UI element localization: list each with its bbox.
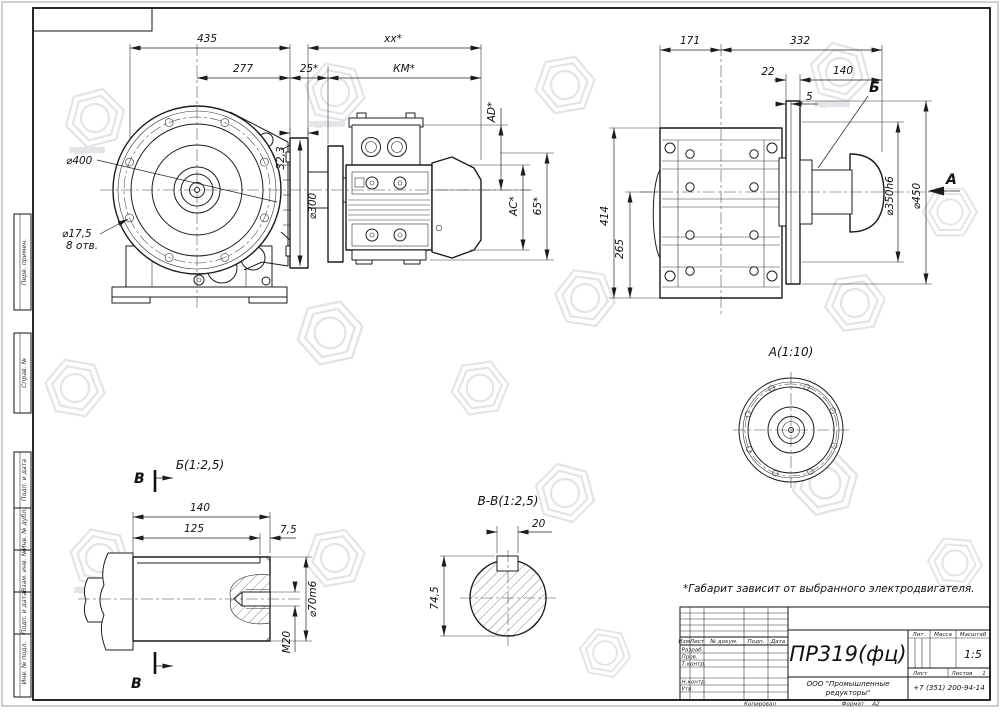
dim-dia300: ⌀300 — [307, 193, 319, 220]
kopiroval-label: Копировал — [744, 702, 776, 708]
dim-dia450: ⌀450 — [911, 183, 923, 210]
row-razrab: Разраб. — [682, 648, 704, 654]
stub-podp-data-1: Подп. и дата — [21, 459, 28, 501]
row-utv: Утв. — [682, 687, 694, 693]
dim-25: 25* — [300, 63, 319, 75]
dim-8-holes: 8 отв. — [66, 240, 98, 252]
company-line1: ООО "Промышленные — [806, 679, 890, 688]
stub-sprav-n: Справ. № — [21, 358, 28, 388]
hdr-list: Лист — [912, 671, 928, 677]
dim-125: 125 — [184, 523, 204, 535]
dim-dia350: ⌀350h6 — [884, 176, 896, 216]
dim-dia70: ⌀70m6 — [307, 580, 319, 617]
format-label: Формат — [842, 702, 865, 708]
sheets-value: 1 — [982, 671, 986, 677]
stub-perv-primen: Перв. примен. — [21, 239, 28, 285]
dim-ad: AD* — [486, 102, 498, 124]
watermark-text: РЕДУКТОРЫ — [815, 102, 849, 108]
col-data: Дата — [770, 639, 786, 645]
view-a-label: А(1:10) — [768, 345, 814, 359]
scale-value: 1:5 — [964, 648, 982, 661]
dim-m20: М20 — [281, 630, 293, 653]
row-prov: Пров. — [682, 655, 698, 661]
dim-32-3: 32,3 — [275, 146, 287, 169]
dim-7-5: 7,5 — [280, 524, 297, 536]
label-b-callout: Б — [869, 80, 880, 96]
watermark-text: РЕДУКТОРЫ — [70, 148, 104, 154]
dim-435: 435 — [197, 33, 217, 45]
dim-171: 171 — [680, 35, 700, 47]
dim-332: 332 — [790, 35, 810, 47]
drawing-sheet: РЕДУКТОРЫ РЕДУКТОРЫ РЕДУКТОРЫ РЕДУКТОРЫ … — [0, 0, 1000, 708]
stub-podp-data-2: Подп. и дата — [21, 592, 28, 634]
company-line2: редукторы" — [825, 688, 871, 697]
drawing-canvas: РЕДУКТОРЫ РЕДУКТОРЫ РЕДУКТОРЫ РЕДУКТОРЫ … — [0, 0, 1000, 708]
hdr-massa: Масса — [934, 632, 952, 638]
dim-414: 414 — [599, 206, 611, 226]
view-b: Б(1:2,5) В В 140 125 7,5 ⌀70m6 М20 — [78, 458, 319, 692]
dim-22: 22 — [761, 66, 775, 78]
hdr-listov: Листов — [951, 671, 973, 677]
col-podp: Подп. — [748, 639, 765, 645]
stub-inv-podl: Инв. № подл. — [21, 642, 28, 685]
side-view — [640, 44, 945, 315]
dim-265: 265 — [614, 239, 626, 259]
dim-140-side: 140 — [833, 65, 853, 77]
hdr-lit: Лит. — [912, 632, 926, 638]
col-doc: № докум. — [709, 639, 738, 645]
frame-stubs: Перв. примен. Справ. № Подп. и дата Инв.… — [14, 214, 31, 697]
dim-dia400: ⌀400 — [66, 155, 93, 167]
view-a: А(1:10) — [733, 345, 849, 488]
title-block: Изм. Лист № докум. Подп. Дата Разраб. Пр… — [678, 607, 990, 708]
section-vv-label: В-В(1:2,5) — [478, 494, 539, 508]
section-vv: В-В(1:2,5) 20 74,5 — [429, 494, 556, 646]
view-b-label: Б(1:2,5) — [176, 458, 224, 472]
dim-xx: xx* — [383, 33, 402, 45]
col-list: Лист — [689, 639, 705, 645]
dim-140-shaft: 140 — [190, 502, 210, 514]
dim-277: 277 — [233, 63, 253, 75]
label-a-view: А — [945, 172, 957, 188]
dim-20: 20 — [532, 518, 546, 530]
format-value: А2 — [871, 702, 880, 708]
dim-65: 65* — [532, 197, 544, 216]
stub-vzam-inv: Взам. инв. № — [21, 550, 28, 592]
dim-km: КМ* — [393, 63, 415, 75]
stub-inv-dubl: Инв. № дубл. — [20, 508, 28, 550]
hdr-masshtab: Масштаб — [960, 632, 987, 638]
dim-ac: AC* — [508, 196, 520, 217]
row-tkontr: Т.контр. — [682, 662, 706, 668]
footnote: *Габарит зависит от выбранного электродв… — [683, 583, 974, 595]
company-phone: +7 (351) 200-94-14 — [913, 683, 985, 692]
row-nkontr: Н.контр. — [682, 680, 707, 686]
drawing-number: ПР319(фц) — [789, 642, 906, 666]
corner-reference-box — [33, 8, 152, 31]
dim-74-5: 74,5 — [429, 586, 441, 610]
section-marker-v-top: В — [134, 471, 145, 487]
dim-dia17-5: ⌀17,5 — [62, 228, 92, 240]
section-marker-v-bottom: В — [131, 676, 142, 692]
watermark-text: РЕДУКТОРЫ — [310, 122, 344, 128]
